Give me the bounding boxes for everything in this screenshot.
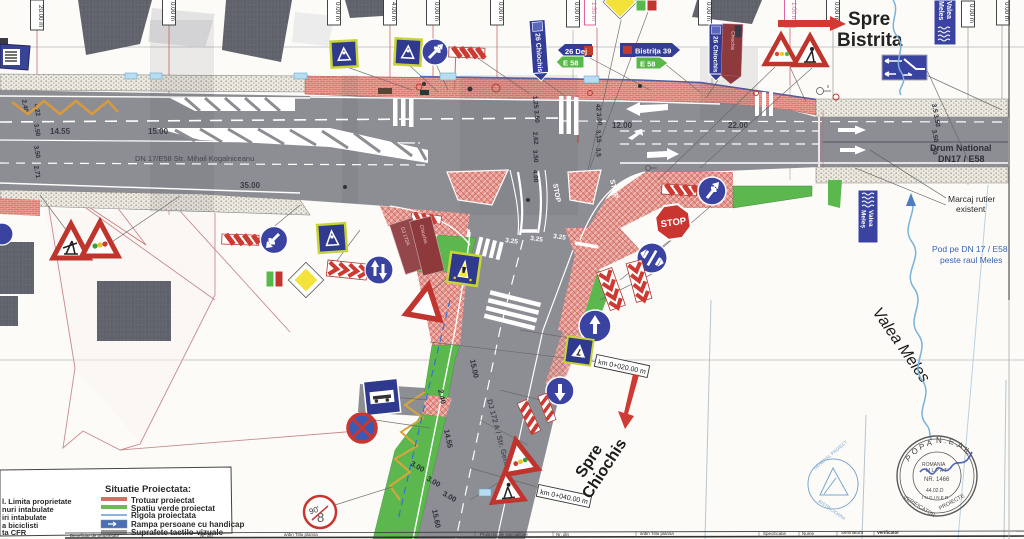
svg-text:0.00 m: 0.00 m (433, 2, 440, 21)
svg-text:existent: existent (956, 204, 986, 214)
svg-text:Chiochis: Chiochis (729, 31, 736, 51)
svg-text:2.62: 2.62 (531, 132, 539, 146)
svg-text:15.00: 15.00 (148, 127, 169, 136)
svg-text:0.00 m: 0.00 m (705, 2, 712, 21)
svg-text:Pod pe DN 17 / E58,: Pod pe DN 17 / E58, (932, 244, 1010, 254)
svg-text:3.5: 3.5 (594, 148, 602, 158)
svg-text:Spre: Spre (848, 9, 890, 30)
svg-text:26 Dej: 26 Dej (565, 47, 587, 56)
svg-text:Nume: Nume (802, 531, 815, 536)
svg-text:Bistrița 39: Bistrița 39 (635, 47, 671, 56)
svg-text:26 Chiochis: 26 Chiochis (712, 36, 719, 73)
svg-text:4.00: 4.00 (531, 170, 539, 184)
svg-text:Valea: Valea (867, 210, 874, 227)
svg-text:0.00 m: 0.00 m (169, 2, 176, 21)
svg-text:1.50 m: 1.50 m (590, 2, 597, 21)
svg-text:E 58: E 58 (563, 59, 578, 68)
svg-text:0.00 m: 0.00 m (334, 2, 341, 21)
svg-text:I N G I N E R: I N G I N E R (922, 495, 949, 500)
svg-text:a/din Titlu plansa: a/din Titlu plansa (640, 531, 674, 536)
svg-text:20.00 m: 20.00 m (37, 5, 44, 27)
svg-text:Beneficiar de proprietate: Beneficiar de proprietate (70, 533, 120, 538)
svg-text:DN17 / E58: DN17 / E58 (938, 154, 985, 164)
svg-text:4.00 m: 4.00 m (390, 2, 397, 21)
svg-text:Meleș: Meleș (860, 210, 867, 228)
svg-text:22.00: 22.00 (728, 121, 749, 130)
svg-text:N: N (936, 436, 942, 445)
svg-text:44.02.D: 44.02.D (926, 488, 944, 494)
svg-text:Nr. din: Nr. din (200, 533, 214, 538)
svg-text:Rigola proiectata: Rigola proiectata (131, 511, 196, 520)
svg-text:1.00 m: 1.00 m (790, 2, 797, 21)
svg-text:Specificatie: Specificatie (763, 531, 787, 536)
svg-text:12.00: 12.00 (612, 121, 633, 130)
svg-text:35.00: 35.00 (240, 181, 261, 190)
svg-text:. E: . E (944, 436, 955, 447)
svg-text:0.00 m: 0.00 m (573, 2, 580, 21)
svg-text:0.00 m: 0.00 m (968, 4, 975, 23)
svg-text:E 58: E 58 (640, 60, 655, 69)
svg-text:DN 17/E58 Str. Mihail Kogalnic: DN 17/E58 Str. Mihail Kogalniceanu (135, 154, 254, 163)
svg-text:Valea: Valea (945, 1, 952, 19)
svg-text:Situatie Proiectata:: Situatie Proiectata: (105, 484, 191, 495)
svg-text:0.00 m: 0.00 m (497, 2, 504, 21)
svg-text:Meles: Meles (937, 1, 944, 21)
svg-text:Marcaj rutier: Marcaj rutier (948, 194, 995, 204)
svg-text:a/din Titlu plansa: a/din Titlu plansa (284, 532, 318, 537)
svg-text:NR. 1466: NR. 1466 (924, 477, 950, 483)
svg-text:ta CFR: ta CFR (2, 528, 27, 537)
svg-text:Proiectat de specialitate: Proiectat de specialitate (480, 532, 528, 537)
svg-text:Bistrita: Bistrita (837, 30, 903, 51)
svg-text:peste raul Meles: peste raul Meles (940, 255, 1002, 265)
svg-text:Semnatura: Semnatura (841, 530, 864, 535)
svg-text:Verificator: Verificator (877, 530, 899, 535)
svg-text:Nr. din: Nr. din (556, 532, 570, 537)
svg-text:14.55: 14.55 (50, 127, 71, 136)
svg-text:3.50: 3.50 (531, 150, 539, 164)
